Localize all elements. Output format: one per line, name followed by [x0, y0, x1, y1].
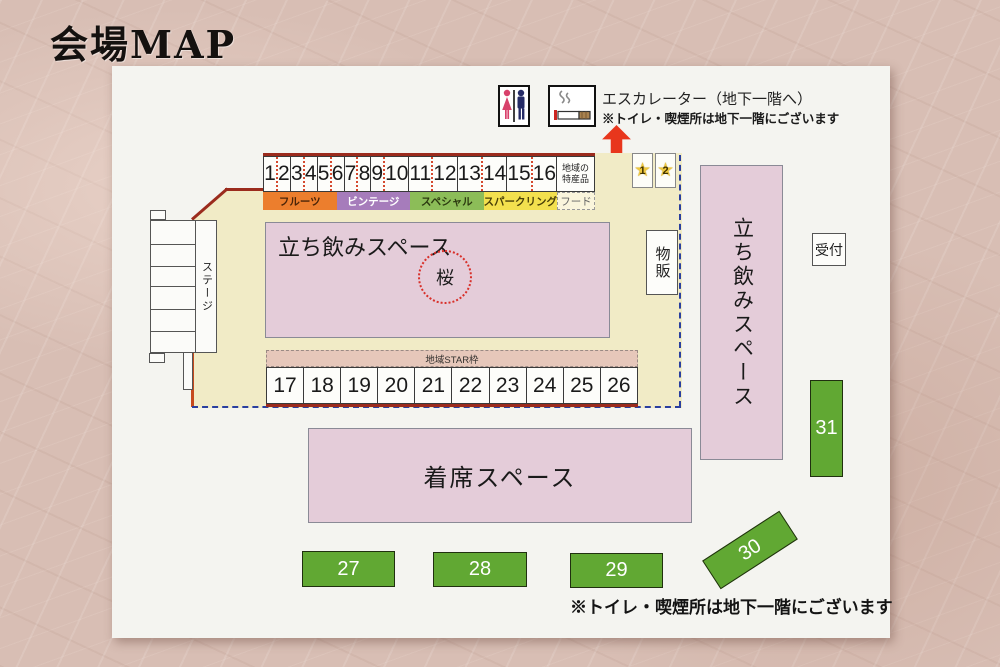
- booth-number: 15: [507, 157, 530, 191]
- regional-specialty-label: 特産品: [562, 174, 589, 185]
- booth-27: 27: [302, 551, 395, 587]
- escalator-note: ※トイレ・喫煙所は地下一階にございます: [602, 108, 839, 127]
- regional-specialty-label: 地域の: [562, 163, 589, 174]
- booth-number: 17: [267, 368, 303, 403]
- booth-number: 22: [451, 368, 488, 403]
- category-fruit: フルーツ: [263, 192, 337, 210]
- booth-number: 5: [318, 157, 330, 191]
- stage-tab-bottom: [149, 353, 165, 363]
- category-sparkling: スパークリング: [484, 192, 558, 210]
- booth-number: 2: [276, 157, 290, 191]
- booth-pair: 1112: [408, 157, 456, 191]
- booth-30: 30: [702, 511, 798, 590]
- stage-step: [151, 331, 195, 332]
- stage-tab-top: [150, 210, 166, 220]
- booth-number: 10: [383, 157, 408, 191]
- booth-pair: 56: [317, 157, 344, 191]
- booth-row-bottom-line: [266, 404, 638, 407]
- booth-number: 24: [526, 368, 563, 403]
- sakura-circle: 桜: [418, 250, 472, 304]
- booth-28: 28: [433, 552, 527, 587]
- standing-space-right: 立ち飲みスペース: [700, 165, 783, 460]
- booth-number: 21: [414, 368, 451, 403]
- regional-specialty-booth: 地域の 特産品: [557, 156, 595, 192]
- booth-number: 3: [291, 157, 303, 191]
- bottom-booth-row: 17 18 19 20 21 22 23 24 25 26: [266, 367, 638, 404]
- booth-number: 19: [340, 368, 377, 403]
- booth-number: 6: [330, 157, 344, 191]
- booth-pair: 910: [370, 157, 408, 191]
- category-special: スペシャル: [410, 192, 484, 210]
- booth-pair: 1314: [457, 157, 507, 191]
- stage-step: [151, 244, 195, 245]
- booth-number: 26: [600, 368, 637, 403]
- category-row: フルーツ ビンテージ スペシャル スパークリング: [263, 192, 557, 210]
- goods-sales-booth: 物販: [646, 230, 678, 295]
- star-booth-1: ★ 1: [632, 153, 653, 188]
- stage-area: ステージ: [150, 220, 217, 353]
- smoking-area-icon: [548, 85, 596, 127]
- booth-number: 13: [458, 157, 481, 191]
- page-title: 会場MAP: [50, 14, 236, 69]
- booth-number: 12: [431, 157, 456, 191]
- booth-number: 18: [303, 368, 340, 403]
- booth-number: 7: [345, 157, 357, 191]
- escalator-label: エスカレーター（地下一階へ）: [602, 88, 812, 109]
- category-food: フード: [557, 192, 595, 210]
- booth-number: 11: [409, 157, 431, 191]
- star-booth-2: ★ 2: [655, 153, 676, 188]
- booth-pair: 12: [264, 157, 290, 191]
- seating-space: 着席スペース: [308, 428, 692, 523]
- reception-booth: 受付: [812, 233, 846, 266]
- booth-number: 20: [377, 368, 414, 403]
- booth-pair: 78: [344, 157, 371, 191]
- top-booth-row: 12 34 56 78 910 1112 1314 1516: [263, 156, 557, 192]
- star-booth-number: 2: [662, 165, 668, 177]
- booth-31: 31: [810, 380, 843, 477]
- booth-number: 4: [303, 157, 317, 191]
- boundary-blue-dashed-vertical: [679, 155, 681, 407]
- booth-number: 8: [356, 157, 370, 191]
- stage-step: [151, 309, 195, 310]
- booth-number: 23: [489, 368, 526, 403]
- stage-label: ステージ: [196, 221, 217, 352]
- venue-map: エスカレーター（地下一階へ） ※トイレ・喫煙所は地下一階にございます 12 34…: [112, 66, 890, 638]
- booth-number: 14: [481, 157, 506, 191]
- booth-number: 25: [563, 368, 600, 403]
- booth-number: 1: [264, 157, 276, 191]
- stage-step: [151, 286, 195, 287]
- booth-number: 9: [371, 157, 383, 191]
- booth-pair: 1516: [506, 157, 556, 191]
- toilet-icon: [498, 85, 530, 127]
- regional-star-frame: 地域STAR枠: [266, 350, 638, 367]
- booth-pair: 34: [290, 157, 317, 191]
- boundary-top-line: [225, 188, 264, 191]
- booth-number: 16: [531, 157, 556, 191]
- category-vintage: ビンテージ: [337, 192, 411, 210]
- toilet-smoking-note: ※トイレ・喫煙所は地下一階にございます: [570, 593, 893, 618]
- stage-step: [151, 266, 195, 267]
- star-booth-number: 1: [639, 165, 645, 177]
- stage-side-block: [183, 352, 193, 390]
- booth-29: 29: [570, 553, 663, 588]
